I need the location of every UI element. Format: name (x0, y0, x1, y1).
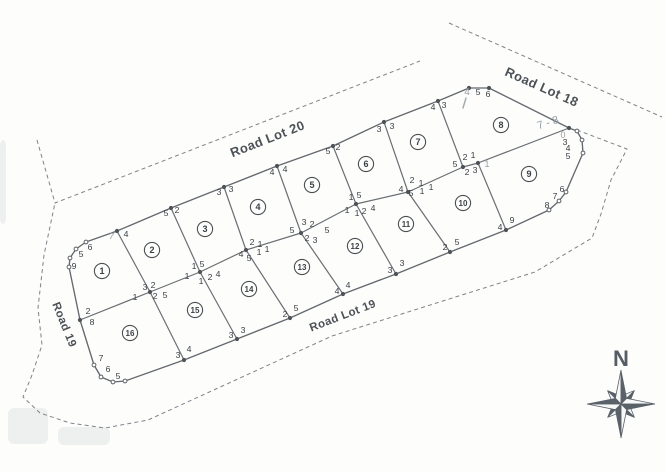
junction-dot (354, 202, 358, 206)
corner-number: 5 (116, 371, 121, 381)
lot-number-16: 16 (122, 325, 137, 340)
lot-number-12: 12 (347, 238, 362, 253)
curve-point (67, 265, 71, 269)
junction-dot (275, 164, 279, 168)
corner-number: 9 (510, 215, 515, 225)
corner-number: 4 (216, 269, 221, 279)
corner-number: 1 (265, 244, 270, 254)
corner-number: 5 (453, 159, 458, 169)
junction-dot (436, 99, 440, 103)
curve-point (580, 138, 584, 142)
junction-dot (448, 250, 452, 254)
corner-number: 3 (473, 165, 478, 175)
pencil-annotation: 7 - 8 (536, 114, 561, 132)
corner-number: 2 (310, 219, 315, 229)
pencil-annotation: 4 (464, 87, 470, 98)
compass-rose: N (587, 346, 655, 438)
corner-number: 5 (325, 225, 330, 235)
corner-number: 2 (250, 237, 255, 247)
lot-number-10: 10 (455, 195, 470, 210)
pencil-annotations: 7 - 84017 (108, 87, 565, 241)
junction-dot (299, 231, 303, 235)
lot-number-8: 8 (493, 117, 508, 132)
corner-number: 4 (335, 286, 340, 296)
corner-number: 4 (283, 164, 288, 174)
corner-number: 1 (429, 182, 434, 192)
road-label-road-lot-19: Road Lot 19 (308, 298, 378, 334)
lot-number-text: 5 (309, 180, 314, 190)
compass-north-label: N (613, 346, 629, 371)
compass-point-half (621, 398, 655, 404)
corner-number: 7 (99, 353, 104, 363)
lot-number-text: 12 (351, 242, 360, 251)
curve-point (564, 190, 568, 194)
corner-number: 6 (560, 184, 565, 194)
lot-number-2: 2 (144, 242, 159, 257)
junction-dot (115, 229, 119, 233)
corner-number: 2 (151, 280, 156, 290)
lot-number-text: 10 (459, 199, 468, 208)
lot-number-text: 2 (149, 245, 154, 255)
junction-dot (148, 290, 152, 294)
corner-number: 3 (229, 330, 234, 340)
pencil-annotation: 0 (560, 130, 565, 140)
corner-number: 2 (208, 272, 213, 282)
scan-smudge (58, 427, 110, 445)
corner-number: 4 (371, 203, 376, 213)
corner-number: 3 (143, 282, 148, 292)
corner-number: 3 (176, 350, 181, 360)
plat-map-page: 4523344523343566592876532125151124214511… (0, 0, 665, 472)
corner-number: 2 (362, 206, 367, 216)
pencil-annotation: 1 (484, 159, 489, 169)
pencil-annotation: 7 (108, 231, 115, 242)
curve-point (68, 256, 72, 260)
curve-point (92, 363, 96, 367)
lot-number-9: 9 (521, 166, 536, 181)
curve-point-markers (67, 129, 585, 384)
corner-number: 5 (566, 151, 571, 161)
corner-number: 6 (486, 89, 491, 99)
junction-dot (382, 120, 386, 124)
scan-smudges (0, 140, 110, 445)
curve-point (575, 129, 579, 133)
corner-number: 1 (133, 292, 138, 302)
corner-number: 5 (247, 253, 252, 263)
corner-number: 1 (349, 192, 354, 202)
junction-dot (244, 248, 248, 252)
corner-number: 1 (345, 205, 350, 215)
road-label-road-lot-20: Road Lot 20 (228, 117, 307, 160)
corner-number: 6 (106, 364, 111, 374)
lot-number-text: 6 (363, 159, 368, 169)
plat-map-svg: 4523344523343566592876532125151124214511… (0, 0, 665, 472)
lot-number-text: 15 (191, 306, 200, 315)
junction-dot (198, 270, 202, 274)
corner-number: 7 (553, 191, 558, 201)
lot-number-7: 7 (410, 134, 425, 149)
lot-boundary-line (478, 163, 506, 230)
corner-number: 4 (431, 102, 436, 112)
corner-number: 5 (290, 225, 295, 235)
lot-number-text: 3 (202, 224, 207, 234)
curve-point (111, 380, 115, 384)
compass-point-half (587, 404, 621, 410)
lot-number-text: 9 (526, 169, 531, 179)
corner-number: 3 (390, 121, 395, 131)
corner-number: 2 (336, 142, 341, 152)
junction-dot (288, 316, 292, 320)
corner-number: 1 (257, 247, 262, 257)
junction-dot (222, 185, 226, 189)
lot-number-5: 5 (304, 177, 319, 192)
corner-number: 2 (463, 152, 468, 162)
corner-number: 2 (86, 306, 91, 316)
junction-dot (78, 318, 82, 322)
corner-number: 1 (355, 208, 360, 218)
corner-number: 1 (199, 276, 204, 286)
corner-number: 5 (294, 303, 299, 313)
curve-point (123, 379, 127, 383)
corner-number: 4 (187, 344, 192, 354)
corner-number: 5 (357, 190, 362, 200)
corner-number: 5 (476, 87, 481, 97)
corner-number: 1 (192, 261, 197, 271)
compass-point-half (587, 398, 621, 404)
lot-number-text: 16 (126, 329, 135, 338)
junction-dot (169, 206, 173, 210)
block-outline (69, 88, 583, 382)
corner-number: 8 (545, 200, 550, 210)
corner-number: 2 (465, 167, 470, 177)
corner-number: 4 (239, 249, 244, 259)
lot-number-11: 11 (398, 216, 413, 231)
junction-dot (504, 228, 508, 232)
lot-number-13: 13 (294, 259, 309, 274)
corner-number: 5 (200, 259, 205, 269)
lot-number-text: 14 (245, 285, 254, 294)
corner-number: 3 (217, 187, 222, 197)
lot-number-6: 6 (358, 156, 373, 171)
corner-number: 4 (498, 222, 503, 232)
curve-point (74, 247, 78, 251)
corner-number: 5 (455, 237, 460, 247)
corner-number: 8 (90, 317, 95, 327)
corner-number: 4 (399, 184, 404, 194)
corner-number: 6 (88, 242, 93, 252)
corner-number: 4 (270, 167, 275, 177)
lot-number-text: 4 (255, 202, 260, 212)
corner-number: 1 (471, 150, 476, 160)
corner-number: 5 (164, 208, 169, 218)
lot-boundary-line (438, 101, 463, 167)
curve-point (581, 151, 585, 155)
lot-number-3: 3 (197, 221, 212, 236)
road-label-road-lot-18: Road Lot 18 (503, 64, 581, 110)
junction-dot (331, 144, 335, 148)
corner-number: 5 (163, 290, 168, 300)
pencil-stroke (463, 98, 466, 108)
scan-smudge (0, 140, 6, 224)
curve-point (99, 375, 103, 379)
corner-number: 2 (175, 205, 180, 215)
lot-number-text: 7 (415, 137, 420, 147)
corner-number: 2 (153, 291, 158, 301)
scan-smudge (8, 408, 48, 444)
lot-number-text: 1 (99, 266, 104, 276)
junction-dot (394, 272, 398, 276)
corner-number: 9 (72, 261, 77, 271)
corner-number: 2 (283, 309, 288, 319)
corner-number: 3 (229, 184, 234, 194)
lot-number-14: 14 (241, 281, 256, 296)
corner-number: 1 (420, 186, 425, 196)
corner-number: 3 (442, 100, 447, 110)
lot-number-text: 13 (298, 263, 307, 272)
corner-number: 3 (302, 217, 307, 227)
junction-dot (182, 358, 186, 362)
corner-number: 4 (124, 229, 129, 239)
corner-number: 2 (443, 242, 448, 252)
lot-number-4: 4 (250, 199, 265, 214)
lot-number-15: 15 (187, 302, 202, 317)
junction-dot (567, 126, 571, 130)
corner-number: 3 (313, 235, 318, 245)
junction-dot (341, 292, 345, 296)
corner-number: 5 (409, 188, 414, 198)
compass-point-half (621, 404, 627, 438)
junction-dot (235, 337, 239, 341)
corner-number: 5 (326, 146, 331, 156)
lot-number-1: 1 (94, 263, 109, 278)
corner-number: 3 (400, 258, 405, 268)
corner-number: 2 (410, 175, 415, 185)
corner-number: 3 (388, 265, 393, 275)
corner-number: 3 (377, 124, 382, 134)
corner-number: 5 (79, 249, 84, 259)
lot-number-text: 11 (402, 220, 411, 229)
corner-number: 3 (241, 325, 246, 335)
dashed-boundary-line (449, 23, 662, 117)
corner-number: 1 (185, 271, 190, 281)
corner-number: 4 (346, 280, 351, 290)
corner-number: 2 (305, 233, 310, 243)
road-label-road-19: Road 19 (49, 301, 78, 350)
subdivision-block-outline (69, 88, 583, 382)
curve-point (557, 199, 561, 203)
lot-number-text: 8 (498, 120, 503, 130)
dashed-road-boundaries (23, 23, 662, 428)
